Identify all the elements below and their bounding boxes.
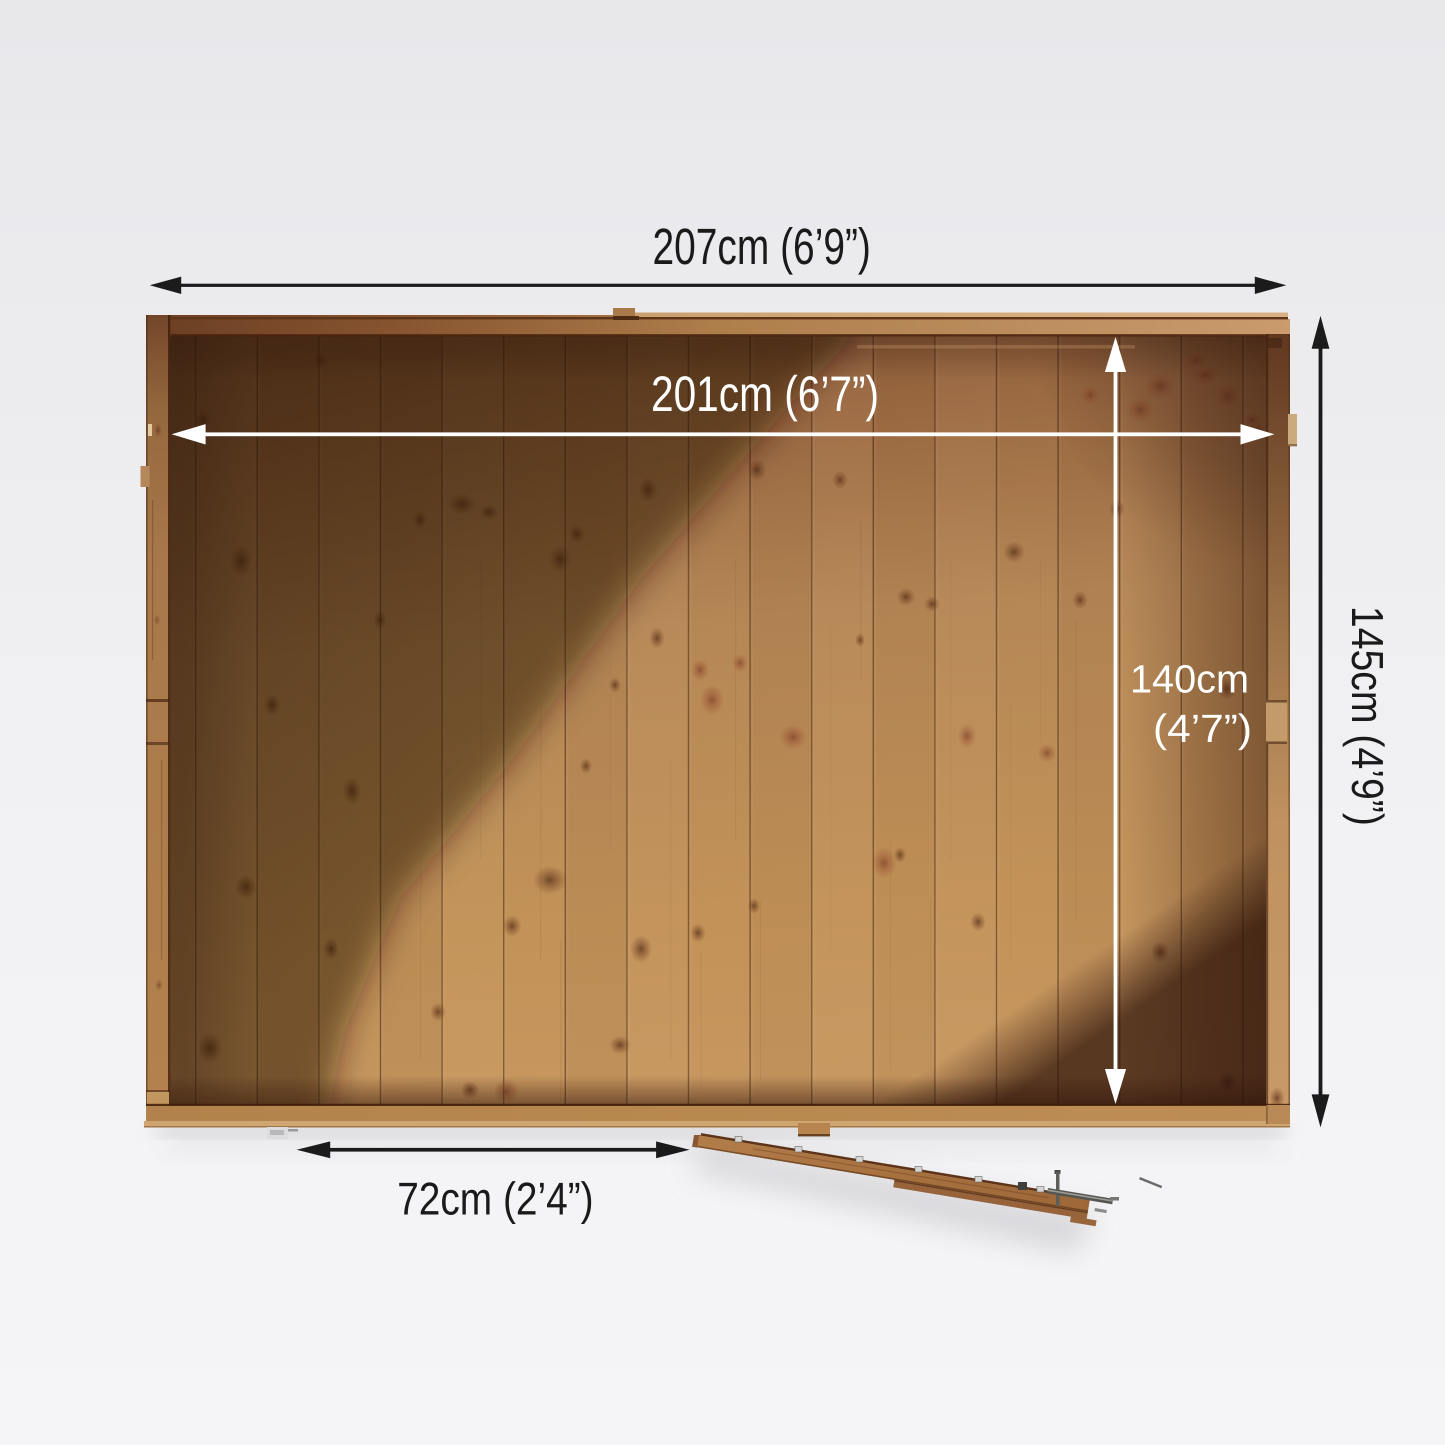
svg-text:140cm: 140cm <box>1130 658 1249 702</box>
svg-text:72cm (2’4”): 72cm (2’4”) <box>397 1172 593 1224</box>
svg-text:207cm (6’9”): 207cm (6’9”) <box>653 218 871 275</box>
svg-text:(4’7”): (4’7”) <box>1153 707 1252 751</box>
svg-text:201cm (6’7”): 201cm (6’7”) <box>651 366 879 422</box>
svg-text:145cm (4’9”): 145cm (4’9”) <box>1342 606 1393 826</box>
